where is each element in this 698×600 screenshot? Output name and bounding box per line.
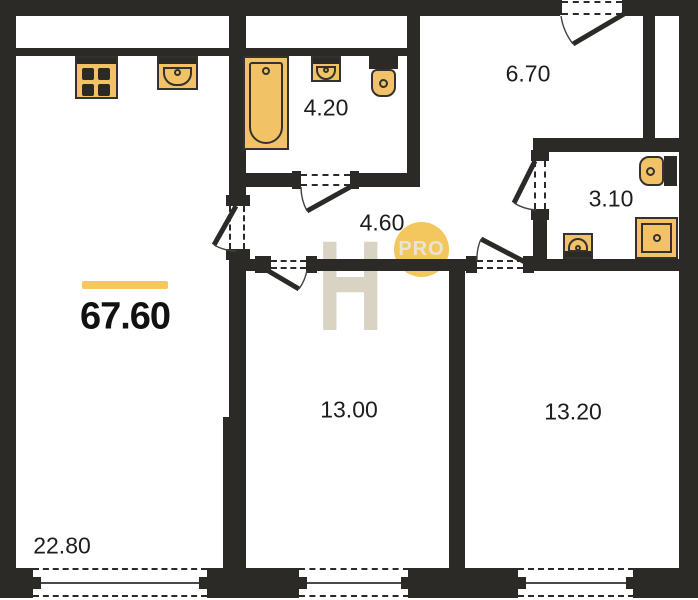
door-jamb: [255, 256, 271, 273]
wall-segment: [16, 48, 420, 56]
window-jamb: [401, 577, 409, 589]
door-jamb: [531, 150, 549, 161]
door-jamb: [350, 171, 359, 189]
sink-drain: [174, 69, 181, 76]
wall-segment: [633, 568, 698, 598]
door-jamb: [292, 171, 301, 189]
door-opening: [271, 260, 306, 262]
wall-segment: [534, 259, 698, 271]
door-swing-arc: [477, 239, 481, 261]
window-jamb: [626, 577, 634, 589]
door-opening: [562, 13, 622, 15]
door-swing-arc: [301, 187, 307, 211]
burner: [82, 68, 94, 80]
door-leaf: [481, 239, 525, 262]
toilet-tank: [369, 56, 398, 69]
door-leaf: [214, 206, 236, 245]
window-edge: [518, 595, 634, 597]
toilet-icon: [371, 69, 396, 97]
watermark-pro-label: PRO: [398, 238, 444, 261]
window-edge: [33, 595, 207, 597]
wall-segment: [679, 0, 698, 598]
window-jamb: [518, 577, 526, 589]
watermark-letter: H: [317, 240, 365, 340]
wall-segment: [533, 138, 698, 152]
window-pane: [40, 582, 200, 584]
door-swing-arc: [561, 16, 573, 44]
window-jamb: [33, 577, 41, 589]
door-opening: [477, 260, 523, 262]
washbasin-icon: [563, 233, 593, 259]
door-opening: [301, 184, 350, 186]
wall-segment: [0, 568, 33, 598]
window-pane: [526, 582, 626, 584]
floor-plan: H PRO: [0, 0, 698, 600]
door-jamb: [306, 256, 317, 273]
door-jamb: [226, 249, 250, 260]
door-jamb: [523, 256, 534, 273]
counter-edge: [77, 58, 116, 64]
door-leaf: [514, 161, 535, 203]
wall-mount: [313, 58, 339, 64]
wall-segment: [407, 16, 420, 187]
door-opening: [301, 174, 350, 176]
door-opening: [562, 1, 622, 3]
room-area-label-hallway: 4.60: [360, 210, 405, 237]
door-opening: [243, 206, 245, 249]
total-area-underline: [82, 281, 168, 289]
room-area-label-entry: 6.70: [506, 61, 551, 88]
shower-tray-icon: [635, 217, 678, 259]
door-opening: [477, 267, 523, 269]
wall-segment: [246, 173, 292, 187]
window-pane: [307, 582, 401, 584]
burner: [98, 68, 110, 80]
door-leaf: [307, 186, 352, 211]
door-jamb: [466, 256, 477, 273]
door-jamb: [622, 0, 631, 16]
window-jamb: [199, 577, 207, 589]
wall-segment: [643, 16, 655, 142]
door-jamb: [553, 0, 562, 15]
door-jamb: [226, 195, 250, 206]
door-leaf: [573, 14, 624, 44]
wall-segment: [533, 220, 547, 259]
window-edge: [299, 595, 409, 597]
window-jamb: [299, 577, 307, 589]
room-area-label-bathroom: 4.20: [304, 95, 349, 122]
basin-drain: [323, 67, 329, 73]
door-opening: [534, 161, 536, 209]
wall-segment: [0, 0, 560, 16]
wall-segment: [207, 568, 299, 598]
window-edge: [518, 568, 634, 570]
wall-segment: [229, 260, 246, 417]
wall-segment: [449, 271, 465, 568]
bathtub-icon: [243, 56, 289, 150]
door-jamb: [531, 209, 549, 220]
washbasin-icon: [311, 56, 341, 82]
room-area-label-room2: 13.20: [544, 399, 602, 426]
door-opening: [271, 267, 306, 269]
door-opening: [229, 206, 231, 249]
stove-icon: [75, 56, 118, 99]
burner: [98, 84, 110, 96]
wall-segment: [408, 568, 518, 598]
wall-segment: [359, 173, 407, 187]
room-area-label-living: 22.80: [33, 533, 91, 560]
wall-segment: [223, 417, 246, 568]
tub-drain: [262, 67, 270, 75]
window-edge: [299, 568, 409, 570]
total-area-label: 67.60: [80, 296, 170, 339]
toilet-tank: [664, 156, 677, 186]
room-area-label-room1: 13.00: [320, 397, 378, 424]
tray-drain: [653, 234, 661, 242]
toilet-bowl: [379, 79, 388, 88]
window-edge: [33, 568, 207, 570]
wall-segment: [229, 259, 255, 271]
wall-segment: [317, 259, 466, 271]
kitchen-sink-icon: [157, 56, 198, 90]
counter-edge: [159, 58, 196, 64]
toilet-bowl: [646, 167, 655, 176]
door-opening: [544, 161, 546, 209]
wall-segment: [0, 0, 16, 598]
room-area-label-wc: 3.10: [589, 186, 634, 213]
basin-drain: [575, 245, 581, 251]
toilet-icon: [639, 156, 664, 186]
burner: [82, 84, 94, 96]
